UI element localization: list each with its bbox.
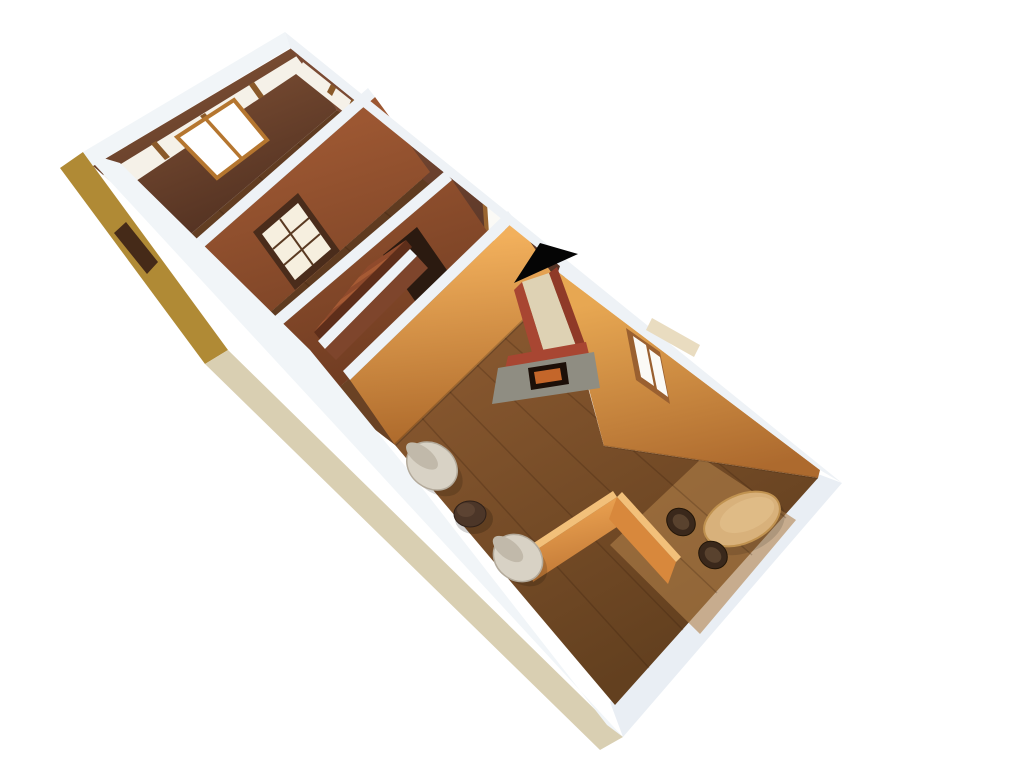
- render-canvas: [0, 0, 1024, 768]
- coffee-table-highlight: [457, 503, 475, 517]
- scene-root: [60, 32, 842, 750]
- floorplan-3d-render: [0, 0, 1024, 768]
